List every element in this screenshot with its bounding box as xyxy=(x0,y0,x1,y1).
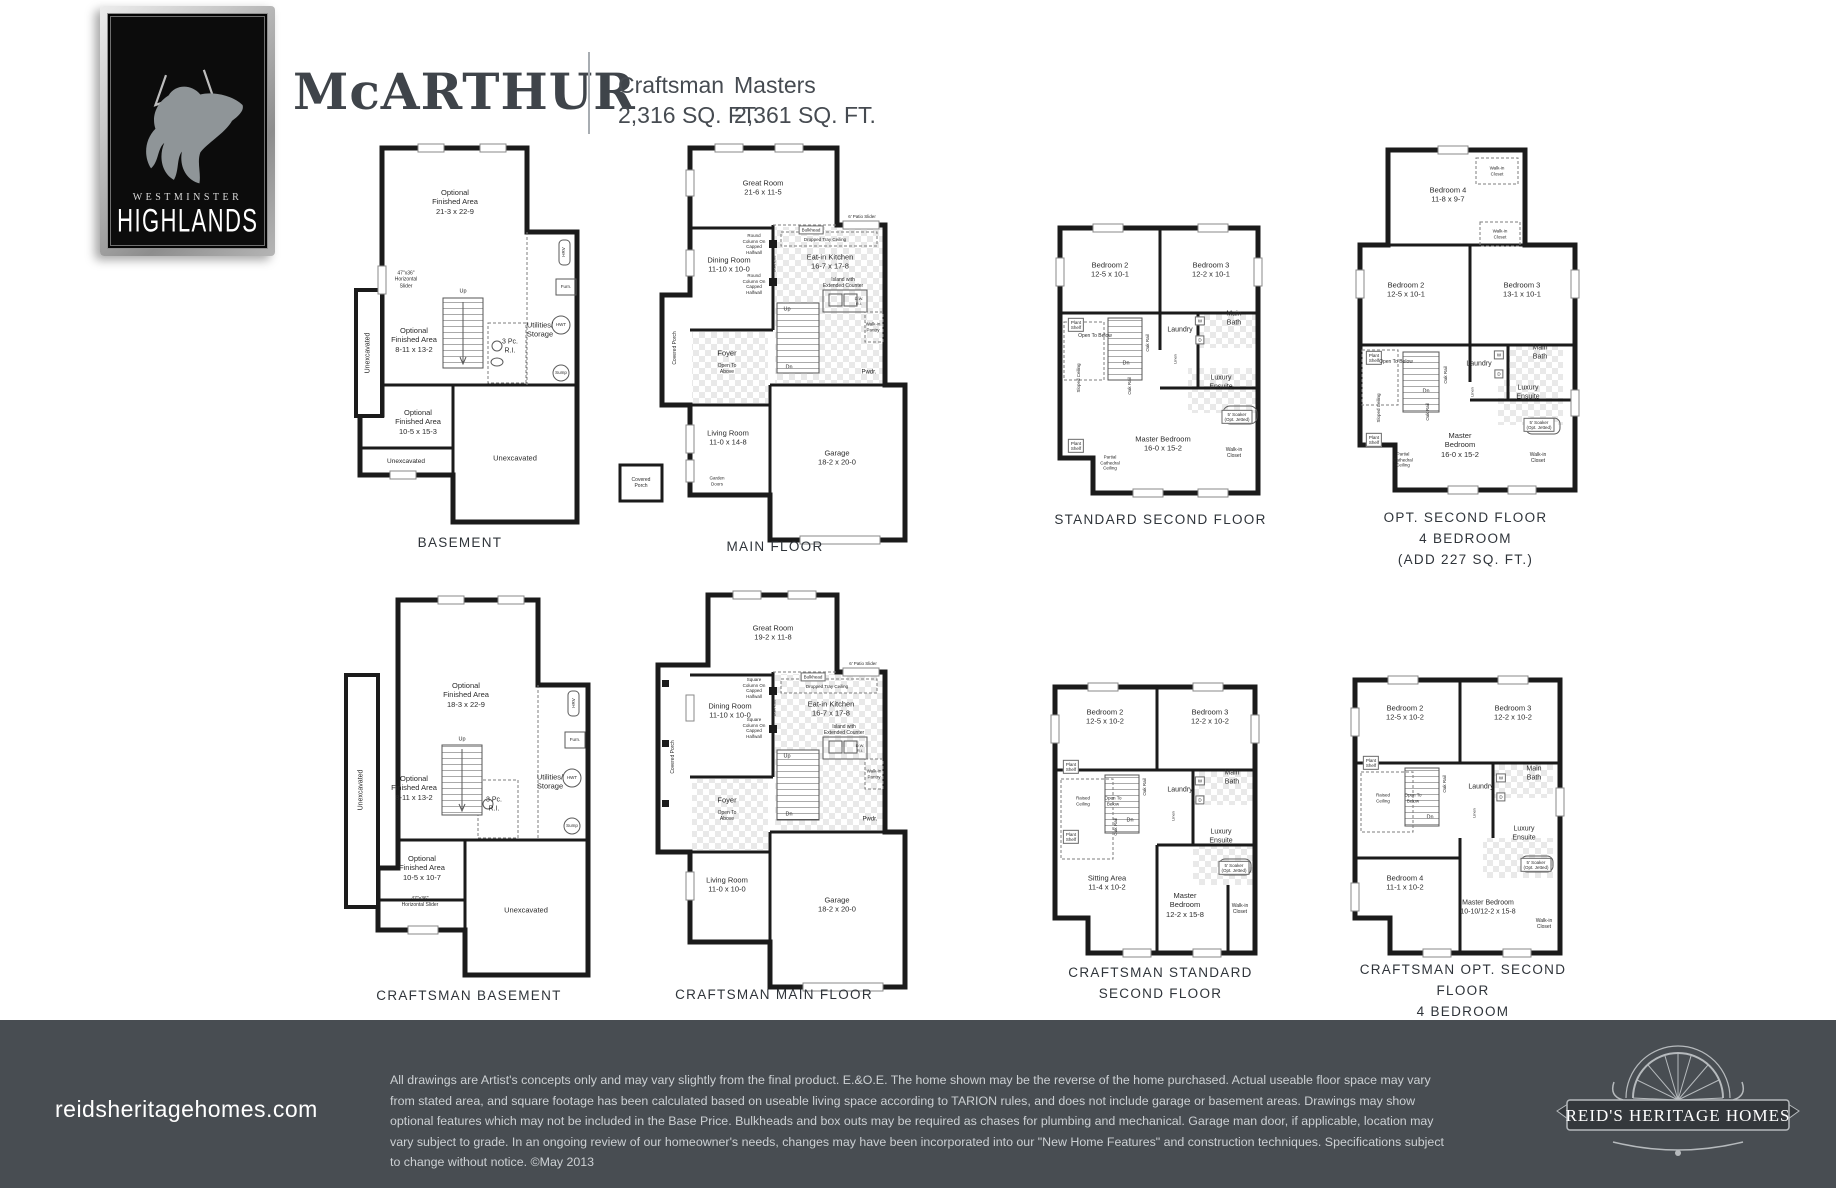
room-label: Raised Ceiling xyxy=(1376,792,1390,803)
room-label: Oak Rail xyxy=(1443,366,1449,383)
room-label: Dn xyxy=(1126,818,1133,825)
room-label: Unexcavated xyxy=(358,770,367,811)
sump-icon: Sump xyxy=(566,823,578,829)
brochure-page: WESTMINSTER HIGHLANDS McARTHUR Craftsman… xyxy=(0,0,1836,1188)
room-label: Walk-in Closet xyxy=(1536,918,1552,931)
room-label: Plant Shelf xyxy=(1063,760,1079,774)
room-label: Garage 18-2 x 20-0 xyxy=(818,896,856,915)
room-label: Partial Cathedral Ceiling xyxy=(1100,455,1120,472)
room-label: Eat-in Kitchen 16-7 x 17-8 xyxy=(808,700,855,719)
floor-plan-craftsman-standard-second: Bedroom 2 12-5 x 10-2Bedroom 3 12-2 x 10… xyxy=(1043,675,1278,995)
room-label: D xyxy=(1496,792,1505,801)
room-label: Master Bedroom 10-10/12-2 x 15-8 xyxy=(1460,899,1515,917)
room-label: Bedroom 2 12-5 x 10-2 xyxy=(1386,704,1424,723)
room-label: Main Bath xyxy=(1224,769,1239,787)
plan-caption: CRAFTSMAN STANDARD SECOND FLOOR xyxy=(1043,963,1278,1005)
room-label: Plant Shelf xyxy=(1363,756,1379,770)
room-label: Open To Above xyxy=(718,810,737,823)
room-label: Bedroom 2 12-5 x 10-1 xyxy=(1091,261,1129,280)
room-label: Luxury Ensuite xyxy=(1209,828,1232,846)
room-label: Foyer xyxy=(717,348,736,357)
floor-plan-opt-second: Bedroom 4 11-8 x 9-7Walk-in ClosetWalk-i… xyxy=(1348,140,1583,580)
floor-plan-basement: Optional Finished Area 21-3 x 22-947"x36… xyxy=(330,140,590,555)
plan-caption: STANDARD SECOND FLOOR xyxy=(1048,510,1273,531)
room-label: 5' Soaker (Opt. Jetted) xyxy=(1523,418,1554,432)
room-label: Utilities/ Storage xyxy=(527,321,553,340)
room-label: Round Column On Capped Halfwall xyxy=(743,233,766,256)
room-label: Dn xyxy=(785,812,792,819)
plan-caption: CRAFTSMAN MAIN FLOOR xyxy=(613,985,935,1006)
window-label: 47"x36" Horizontal Slider xyxy=(402,896,439,909)
website-url: reidsheritagehomes.com xyxy=(55,1096,318,1123)
plan-caption: BASEMENT xyxy=(330,533,590,554)
room-label: Bedroom 3 12-2 x 10-2 xyxy=(1191,708,1229,727)
room-label: Unexcavated xyxy=(493,453,537,462)
basement-labels: Optional Finished Area 21-3 x 22-947"x36… xyxy=(330,140,590,555)
room-label: Open To Below xyxy=(1105,795,1122,806)
room-label: Sitting Area 11-4 x 10-2 xyxy=(1088,874,1126,893)
room-label: Optional Finished Area 8-11 x 13-2 xyxy=(391,326,437,354)
room-label: Master Bedroom 16-0 x 15-2 xyxy=(1441,431,1479,459)
room-label: 5' Soaker (Opt. Jetted) xyxy=(1218,861,1249,875)
room-label: Dn xyxy=(1422,389,1429,396)
room-label: Walk-in Closet xyxy=(1490,165,1505,176)
room-label: Plant Shelf xyxy=(1068,439,1084,453)
room-label: Unexcavated xyxy=(387,458,425,466)
hwt-icon: HWT xyxy=(556,322,566,328)
room-label: Walk-in Closet xyxy=(1530,452,1546,465)
logo-plaque: WESTMINSTER HIGHLANDS xyxy=(107,13,268,249)
room-label: Optional Finished Area 8-11 x 13-2 xyxy=(391,774,437,802)
room-label: Open To Above xyxy=(718,363,737,376)
variant-masters: Masters 2,361 SQ. FT. xyxy=(734,70,876,130)
room-label: Luxury Ensuite xyxy=(1516,384,1539,402)
floor-plan-craftsman-main: Great Room 19-2 x 11-8Square Column On C… xyxy=(613,585,935,1010)
room-label: Laundry xyxy=(1466,361,1491,370)
room-label: 3 Pc. R.I. xyxy=(502,338,518,356)
disclaimer-text: All drawings are Artist's concepts only … xyxy=(390,1070,1450,1173)
room-label: Linen xyxy=(1173,354,1178,364)
room-label: Oak Rail xyxy=(1145,334,1151,351)
room-label: Up xyxy=(459,289,466,296)
hrv-icon: HRV xyxy=(561,247,567,256)
room-label: Plant Shelf xyxy=(1063,830,1079,844)
room-label: Square Column On Capped Halfwall xyxy=(743,677,766,700)
window-label: 47"x36" Horizontal Slider xyxy=(395,271,418,290)
room-label: Optional Finished Area 10-5 x 15-3 xyxy=(395,408,441,436)
room-label: Main Bath xyxy=(1226,310,1241,328)
room-label: Up xyxy=(783,307,790,314)
room-label: Walk-in Pantry xyxy=(867,768,882,779)
room-label: Bedroom 2 12-5 x 10-2 xyxy=(1086,708,1124,727)
room-label: Covered Porch xyxy=(670,740,676,773)
room-label: D xyxy=(1195,795,1204,804)
room-label: Luxury Ensuite xyxy=(1512,825,1535,843)
room-label: 6' Patio Slider xyxy=(849,661,877,667)
room-label: Partial Cathedral Ceiling xyxy=(1393,452,1413,469)
room-label: Covered Porch xyxy=(672,331,678,364)
room-label: Linen xyxy=(1472,808,1477,818)
room-label: Island with Extended Counter xyxy=(823,277,863,290)
room-label: Round Column On Capped Halfwall xyxy=(743,273,766,296)
room-label: Bedroom 2 12-5 x 10-1 xyxy=(1387,281,1425,300)
room-label: D xyxy=(1494,369,1503,378)
room-label: Pwdr. xyxy=(862,816,877,824)
room-label: Plant Shelf xyxy=(1366,433,1382,447)
variant-name: Masters xyxy=(734,70,876,100)
room-label: Living Room 11-0 x 14-8 xyxy=(707,429,749,448)
room-label: Dropped Tray Ceiling xyxy=(804,237,846,243)
room-label: Up xyxy=(458,737,465,744)
room-label: W xyxy=(1494,350,1504,359)
hrv-icon: HRV xyxy=(571,698,577,707)
room-label: Bulkhead xyxy=(772,700,777,717)
room-label: Garden Doors xyxy=(709,475,724,486)
brand-wordmark: REID'S HERITAGE HOMES xyxy=(1566,1106,1791,1125)
room-label: Bedroom 4 11-1 x 10-2 xyxy=(1386,874,1423,893)
room-label: Garage 18-2 x 20-0 xyxy=(818,449,856,468)
main-floor-labels: Great Room 21-6 x 11-5Round Column On Ca… xyxy=(615,140,935,560)
room-label: Bedroom 3 12-2 x 10-1 xyxy=(1192,261,1230,280)
room-label: Luxury Ensuite xyxy=(1209,374,1232,392)
logo-wordmark-highlands: HIGHLANDS xyxy=(117,203,258,241)
footer-bar: reidsheritagehomes.com All drawings are … xyxy=(0,1020,1836,1188)
room-label: Optional Finished Area 10-5 x 10-7 xyxy=(399,854,445,882)
room-label: Foyer xyxy=(717,795,736,804)
room-label: Master Bedroom 16-0 x 15-2 xyxy=(1135,435,1190,454)
room-label: W xyxy=(1496,773,1506,782)
sump-icon: Sump xyxy=(555,370,567,376)
room-label: Dining Room 11-10 x 10-0 xyxy=(708,702,751,721)
room-label: Oak Rail xyxy=(1127,377,1133,394)
room-label: Great Room 19-2 x 11-8 xyxy=(753,624,794,643)
room-label: Linen xyxy=(1470,387,1475,397)
room-label: Great Room 21-6 x 11-5 xyxy=(743,179,784,198)
craftsman-main-labels: Great Room 19-2 x 11-8Square Column On C… xyxy=(613,585,935,1010)
room-label: Walk-in Pantry xyxy=(866,321,881,332)
craftsman-standard-second-labels: Bedroom 2 12-5 x 10-2Bedroom 3 12-2 x 10… xyxy=(1043,675,1278,995)
room-label: Bedroom 3 12-2 x 10-2 xyxy=(1494,704,1532,723)
room-label: Unexcavated xyxy=(504,905,548,914)
floor-plan-main-floor: Great Room 21-6 x 11-5Round Column On Ca… xyxy=(615,140,935,560)
hwt-icon: HWT xyxy=(567,775,577,781)
furnace-icon: Furn. xyxy=(570,737,581,743)
room-label: Utilities/ Storage xyxy=(537,773,563,792)
room-label: Oak Rail xyxy=(1425,403,1431,420)
fox-icon xyxy=(123,54,253,186)
plan-caption: CRAFTSMAN BASEMENT xyxy=(338,986,600,1007)
room-label: Dining Room 11-10 x 10-0 xyxy=(707,256,750,275)
room-label: Bulkhead xyxy=(799,225,824,234)
room-label: D.W. R.I. xyxy=(856,743,865,753)
furnace-icon: Furn. xyxy=(561,284,572,290)
room-label: D xyxy=(1195,335,1204,344)
plan-caption: MAIN FLOOR xyxy=(615,537,935,558)
room-label: Covered Porch xyxy=(632,477,651,490)
variant-sqft: 2,361 SQ. FT. xyxy=(734,100,876,130)
room-label: Laundry xyxy=(1167,787,1192,796)
room-label: Bedroom 3 13-1 x 10-1 xyxy=(1503,281,1541,300)
floor-plan-craftsman-basement: Optional Finished Area 18-3 x 22-9Unexca… xyxy=(338,590,600,1010)
room-label: 5' Soaker (Opt. Jetted) xyxy=(1221,410,1252,424)
room-label: Eat-in Kitchen 16-7 x 17-8 xyxy=(807,253,854,272)
room-label: Island with Extended Counter xyxy=(824,724,864,737)
room-label: Dn xyxy=(1426,815,1433,822)
room-label: Main Bath xyxy=(1526,765,1541,783)
room-label: 5' Soaker (Opt. Jetted) xyxy=(1520,858,1551,872)
room-label: Oak Rail xyxy=(1113,818,1119,835)
room-label: Main Bath xyxy=(1532,344,1547,362)
room-label: Open To Below xyxy=(1405,792,1422,803)
room-label: Pwdr. xyxy=(861,369,876,377)
floor-plan-standard-second: Bedroom 2 12-5 x 10-1Bedroom 3 12-2 x 10… xyxy=(1048,218,1273,538)
room-label: Open To Below xyxy=(1078,333,1112,339)
room-label: Dropped Tray Ceiling xyxy=(806,684,848,690)
room-label: Walk-in Closet xyxy=(1226,447,1242,460)
room-label: Walk-in Closet xyxy=(1232,903,1248,916)
room-label: Dn xyxy=(785,365,792,372)
room-label: 3 Pc. R.I. xyxy=(486,796,502,814)
craftsman-basement-labels: Optional Finished Area 18-3 x 22-9Unexca… xyxy=(338,590,600,1010)
room-label: Oak Rail xyxy=(1442,775,1448,792)
model-title: McARTHUR xyxy=(293,62,636,121)
plan-caption: CRAFTSMAN OPT. SECOND FLOOR 4 BEDROOM xyxy=(1343,960,1583,1023)
room-label: Unexcavated xyxy=(365,333,374,374)
room-label: Bedroom 4 11-8 x 9-7 xyxy=(1430,186,1467,205)
header-divider xyxy=(588,52,590,134)
room-label: Up xyxy=(783,754,790,761)
room-label: Linen xyxy=(1171,811,1176,821)
floor-plan-craftsman-opt-second: Bedroom 2 12-5 x 10-2Bedroom 3 12-2 x 10… xyxy=(1343,668,1583,1013)
room-label: Raised Ceiling xyxy=(1076,795,1090,806)
reids-heritage-homes-crest: REID'S HERITAGE HOMES xyxy=(1553,1038,1803,1168)
room-label: Oak Rail xyxy=(1142,778,1148,795)
room-label: Master Bedroom 12-2 x 15-8 xyxy=(1166,891,1204,919)
westminster-highlands-logo: WESTMINSTER HIGHLANDS xyxy=(100,6,275,256)
room-label: Laundry xyxy=(1167,327,1192,336)
room-label: Laundry xyxy=(1468,784,1493,793)
room-label: W xyxy=(1195,776,1205,785)
room-label: Walk-in Closet xyxy=(1493,228,1508,239)
room-label: Bulkhead xyxy=(801,672,826,681)
room-label: Sloped Ceiling xyxy=(1376,393,1382,422)
plan-caption: OPT. SECOND FLOOR 4 BEDROOM (ADD 227 SQ.… xyxy=(1348,508,1583,571)
room-label: Plant Shelf xyxy=(1068,318,1084,332)
logo-wordmark-westminster: WESTMINSTER xyxy=(133,192,243,203)
room-label: Sloped Ceiling xyxy=(1076,363,1082,392)
room-label: W xyxy=(1195,316,1205,325)
room-label: Dn xyxy=(1122,361,1129,368)
room-label: Living Room 11-0 x 10-0 xyxy=(706,876,748,895)
room-label: Optional Finished Area 21-3 x 22-9 xyxy=(432,188,478,216)
room-label: Bulkhead xyxy=(772,256,777,273)
room-label: Optional Finished Area 18-3 x 22-9 xyxy=(443,681,489,709)
room-label: D.W. R.I. xyxy=(855,296,864,306)
room-label: Open To Below xyxy=(1379,359,1413,365)
room-label: 6' Patio Slider xyxy=(848,214,876,220)
standard-second-labels: Bedroom 2 12-5 x 10-1Bedroom 3 12-2 x 10… xyxy=(1048,218,1273,538)
